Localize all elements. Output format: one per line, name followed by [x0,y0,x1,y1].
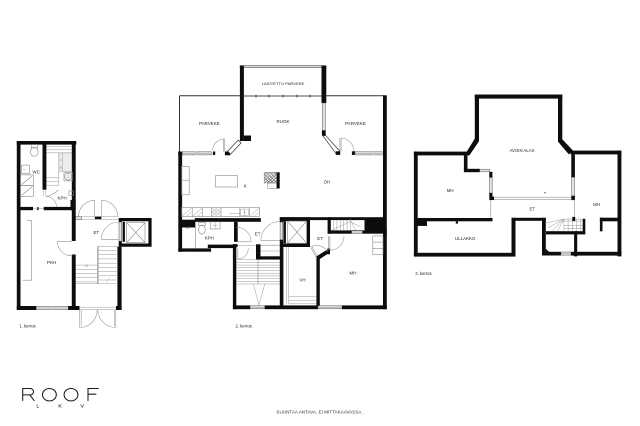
svg-text:VH: VH [299,277,305,282]
svg-text:MH: MH [447,188,454,193]
svg-text:ET: ET [94,230,100,235]
svg-text:RUOK: RUOK [277,119,290,124]
svg-text:K: K [244,183,247,188]
svg-text:S: S [60,166,62,170]
svg-text:PARVEKE: PARVEKE [345,121,366,126]
svg-text:KPH: KPH [58,196,67,201]
svg-text:ULLAKKO: ULLAKKO [455,236,476,241]
svg-text:OH: OH [324,180,331,185]
svg-text:AVOIN ALAS: AVOIN ALAS [510,148,535,153]
svg-text:3. kerros: 3. kerros [415,271,431,276]
svg-text:1. kerros: 1. kerros [19,324,35,329]
svg-text:KPH: KPH [205,235,214,240]
svg-text:WC: WC [33,169,40,174]
svg-text:PARVEKE: PARVEKE [199,121,220,126]
svg-text:LASITETTU PARVEKE: LASITETTU PARVEKE [262,81,305,86]
svg-text:PKH: PKH [47,260,56,265]
svg-text:2. kerros: 2. kerros [236,324,252,329]
svg-text:MH: MH [350,271,357,276]
svg-text:ET: ET [529,206,535,211]
svg-text:ET: ET [317,236,323,241]
svg-text:MH: MH [593,202,600,207]
svg-text:ET: ET [255,231,261,236]
svg-text:SUUNTAA ANTAVA, EI MITTAKAAVAS: SUUNTAA ANTAVA, EI MITTAKAAVASSA. [276,409,362,414]
